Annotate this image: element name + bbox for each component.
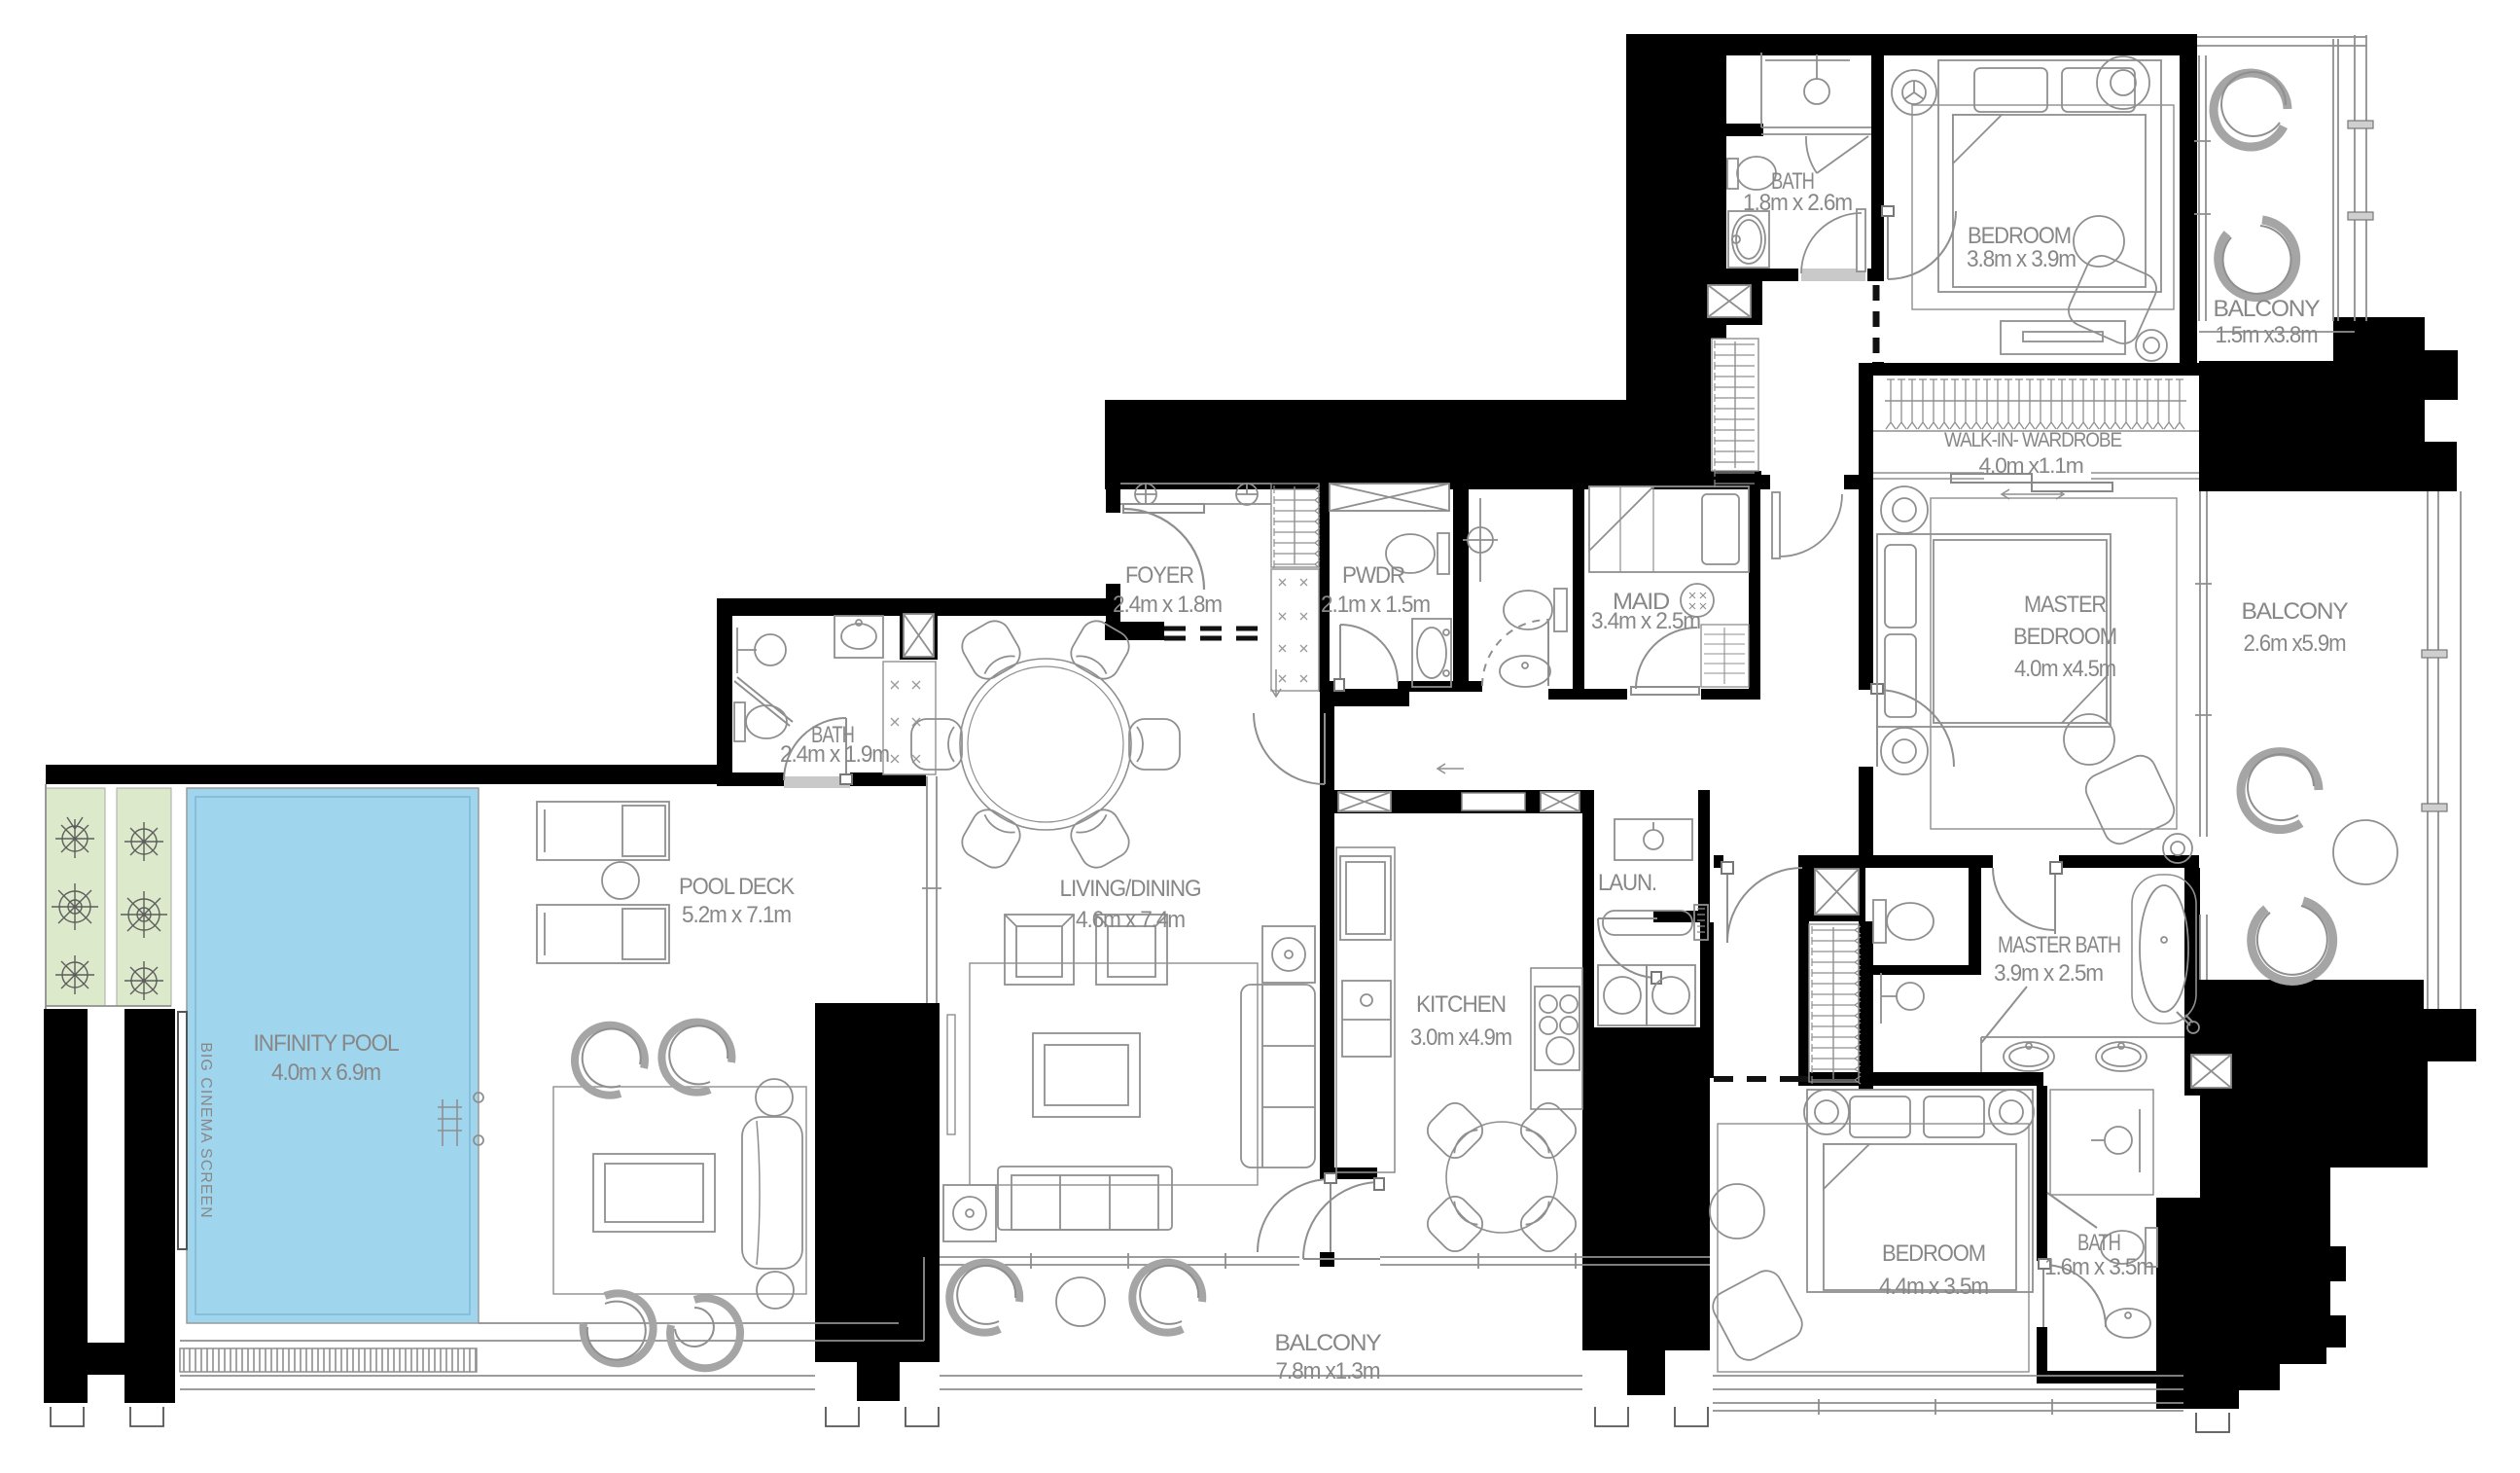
svg-text:1.5m x3.8m: 1.5m x3.8m: [2216, 322, 2318, 348]
svg-text:POOL DECK: POOL DECK: [679, 874, 795, 900]
svg-text:4.0m x 6.9m: 4.0m x 6.9m: [271, 1060, 380, 1086]
svg-text:BALCONY: BALCONY: [2242, 598, 2349, 625]
svg-text:KITCHEN: KITCHEN: [1416, 991, 1506, 1018]
svg-text:LAUN.: LAUN.: [1598, 870, 1656, 896]
svg-text:4.0m x1.1m: 4.0m x1.1m: [1979, 453, 2083, 478]
svg-text:BEDROOM: BEDROOM: [1882, 1240, 1985, 1267]
svg-text:BALCONY: BALCONY: [1275, 1330, 1382, 1356]
svg-text:BEDROOM: BEDROOM: [2013, 624, 2116, 650]
svg-text:BEDROOM: BEDROOM: [1968, 223, 2071, 249]
svg-text:2.6m x5.9m: 2.6m x5.9m: [2244, 630, 2346, 657]
svg-text:MASTER BATH: MASTER BATH: [1998, 932, 2120, 958]
svg-text:3.0m x4.9m: 3.0m x4.9m: [1410, 1024, 1511, 1051]
svg-text:2.4m x 1.9m: 2.4m x 1.9m: [780, 741, 889, 768]
svg-text:1.6m x 3.5m: 1.6m x 3.5m: [2044, 1254, 2153, 1280]
svg-text:7.8m x1.3m: 7.8m x1.3m: [1276, 1358, 1380, 1384]
svg-text:4.0m x4.5m: 4.0m x4.5m: [2014, 656, 2115, 682]
svg-text:MASTER: MASTER: [2024, 592, 2107, 618]
svg-text:PWDR: PWDR: [1342, 562, 1405, 589]
svg-text:WALK-IN- WARDROBE: WALK-IN- WARDROBE: [1944, 429, 2122, 451]
svg-text:2.4m x 1.8m: 2.4m x 1.8m: [1113, 592, 1222, 618]
svg-text:2.1m x 1.5m: 2.1m x 1.5m: [1321, 592, 1430, 618]
svg-text:INFINITY POOL: INFINITY POOL: [254, 1030, 400, 1057]
svg-text:BALCONY: BALCONY: [2214, 296, 2321, 322]
svg-text:LIVING/DINING: LIVING/DINING: [1060, 876, 1201, 902]
svg-text:1.8m x 2.6m: 1.8m x 2.6m: [1743, 190, 1852, 216]
svg-text:3.9m x 2.5m: 3.9m x 2.5m: [1994, 960, 2103, 987]
svg-text:3.8m x 3.9m: 3.8m x 3.9m: [1967, 246, 2076, 272]
svg-text:BIG CINEMA SCREEN: BIG CINEMA SCREEN: [197, 1042, 214, 1218]
svg-text:3.4m x 2.5m: 3.4m x 2.5m: [1591, 608, 1700, 634]
svg-text:4.4m x 3.5m: 4.4m x 3.5m: [1879, 1274, 1988, 1300]
svg-text:4.6m x 7.4m: 4.6m x 7.4m: [1076, 907, 1185, 933]
svg-text:BATH: BATH: [2077, 1230, 2120, 1256]
svg-text:FOYER: FOYER: [1125, 562, 1194, 589]
svg-text:5.2m x 7.1m: 5.2m x 7.1m: [682, 902, 791, 928]
